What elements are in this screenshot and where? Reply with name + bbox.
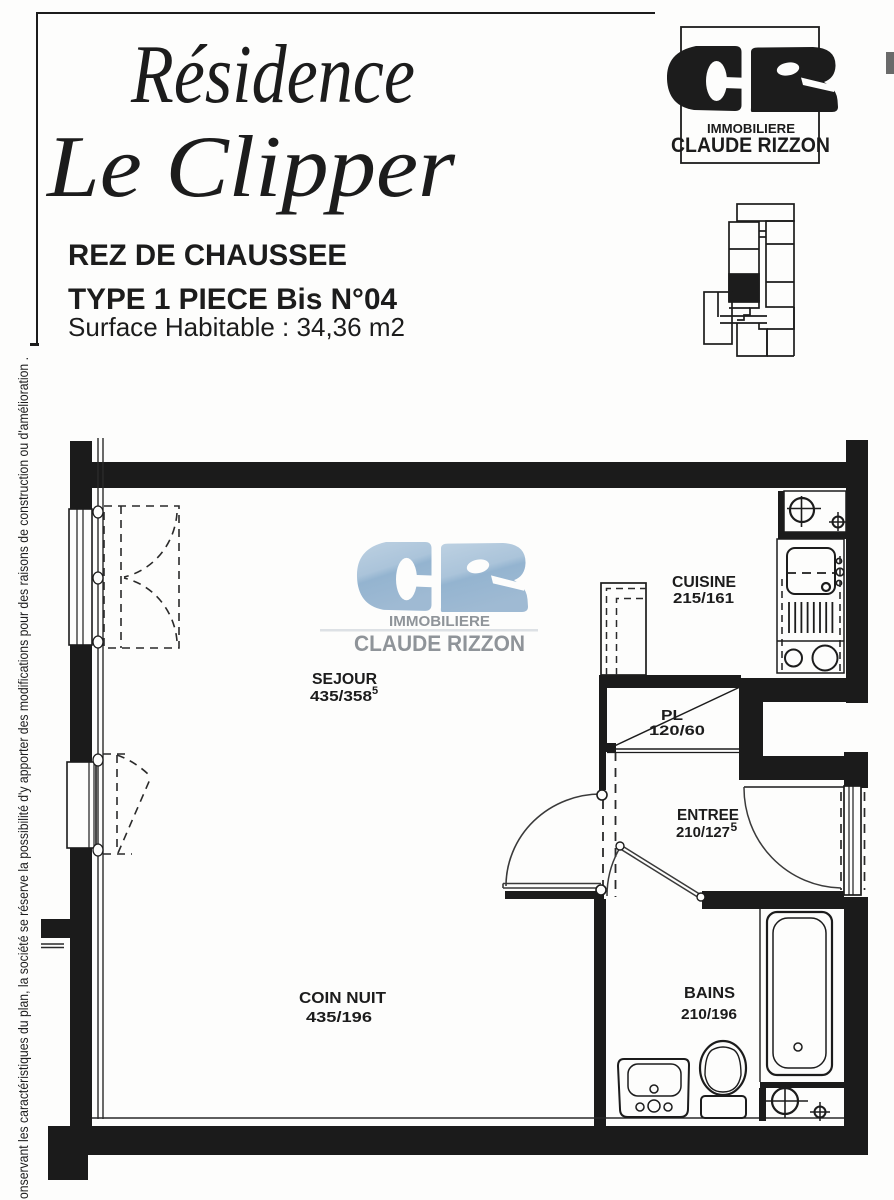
svg-text:435/196: 435/196 <box>306 1010 372 1026</box>
svg-text:120/60: 120/60 <box>649 722 705 738</box>
svg-text:REZ DE CHAUSSEE: REZ DE CHAUSSEE <box>68 239 347 272</box>
svg-text:210/196: 210/196 <box>681 1007 737 1023</box>
svg-text:BAINS: BAINS <box>684 985 735 1002</box>
svg-text:onservant les caractéristiques: onservant les caractéristiques du plan, … <box>16 357 31 1199</box>
svg-text:210/127: 210/127 <box>676 825 730 841</box>
svg-text:5: 5 <box>731 820 738 834</box>
svg-text:5: 5 <box>372 685 378 697</box>
svg-text:Surface Habitable : 34,36 m2: Surface Habitable : 34,36 m2 <box>68 312 405 342</box>
svg-text:CUISINE: CUISINE <box>672 574 736 591</box>
svg-text:CLAUDE RIZZON: CLAUDE RIZZON <box>354 631 525 656</box>
svg-text:COIN NUIT: COIN NUIT <box>299 990 386 1007</box>
svg-text:Résidence: Résidence <box>130 28 415 121</box>
svg-text:Le Clipper: Le Clipper <box>45 119 456 216</box>
svg-text:SEJOUR: SEJOUR <box>312 671 377 688</box>
svg-text:215/161: 215/161 <box>673 591 734 607</box>
svg-text:CLAUDE RIZZON: CLAUDE RIZZON <box>671 134 830 157</box>
svg-text:435/358: 435/358 <box>310 689 372 705</box>
svg-text:IMMOBILIERE: IMMOBILIERE <box>389 613 490 630</box>
